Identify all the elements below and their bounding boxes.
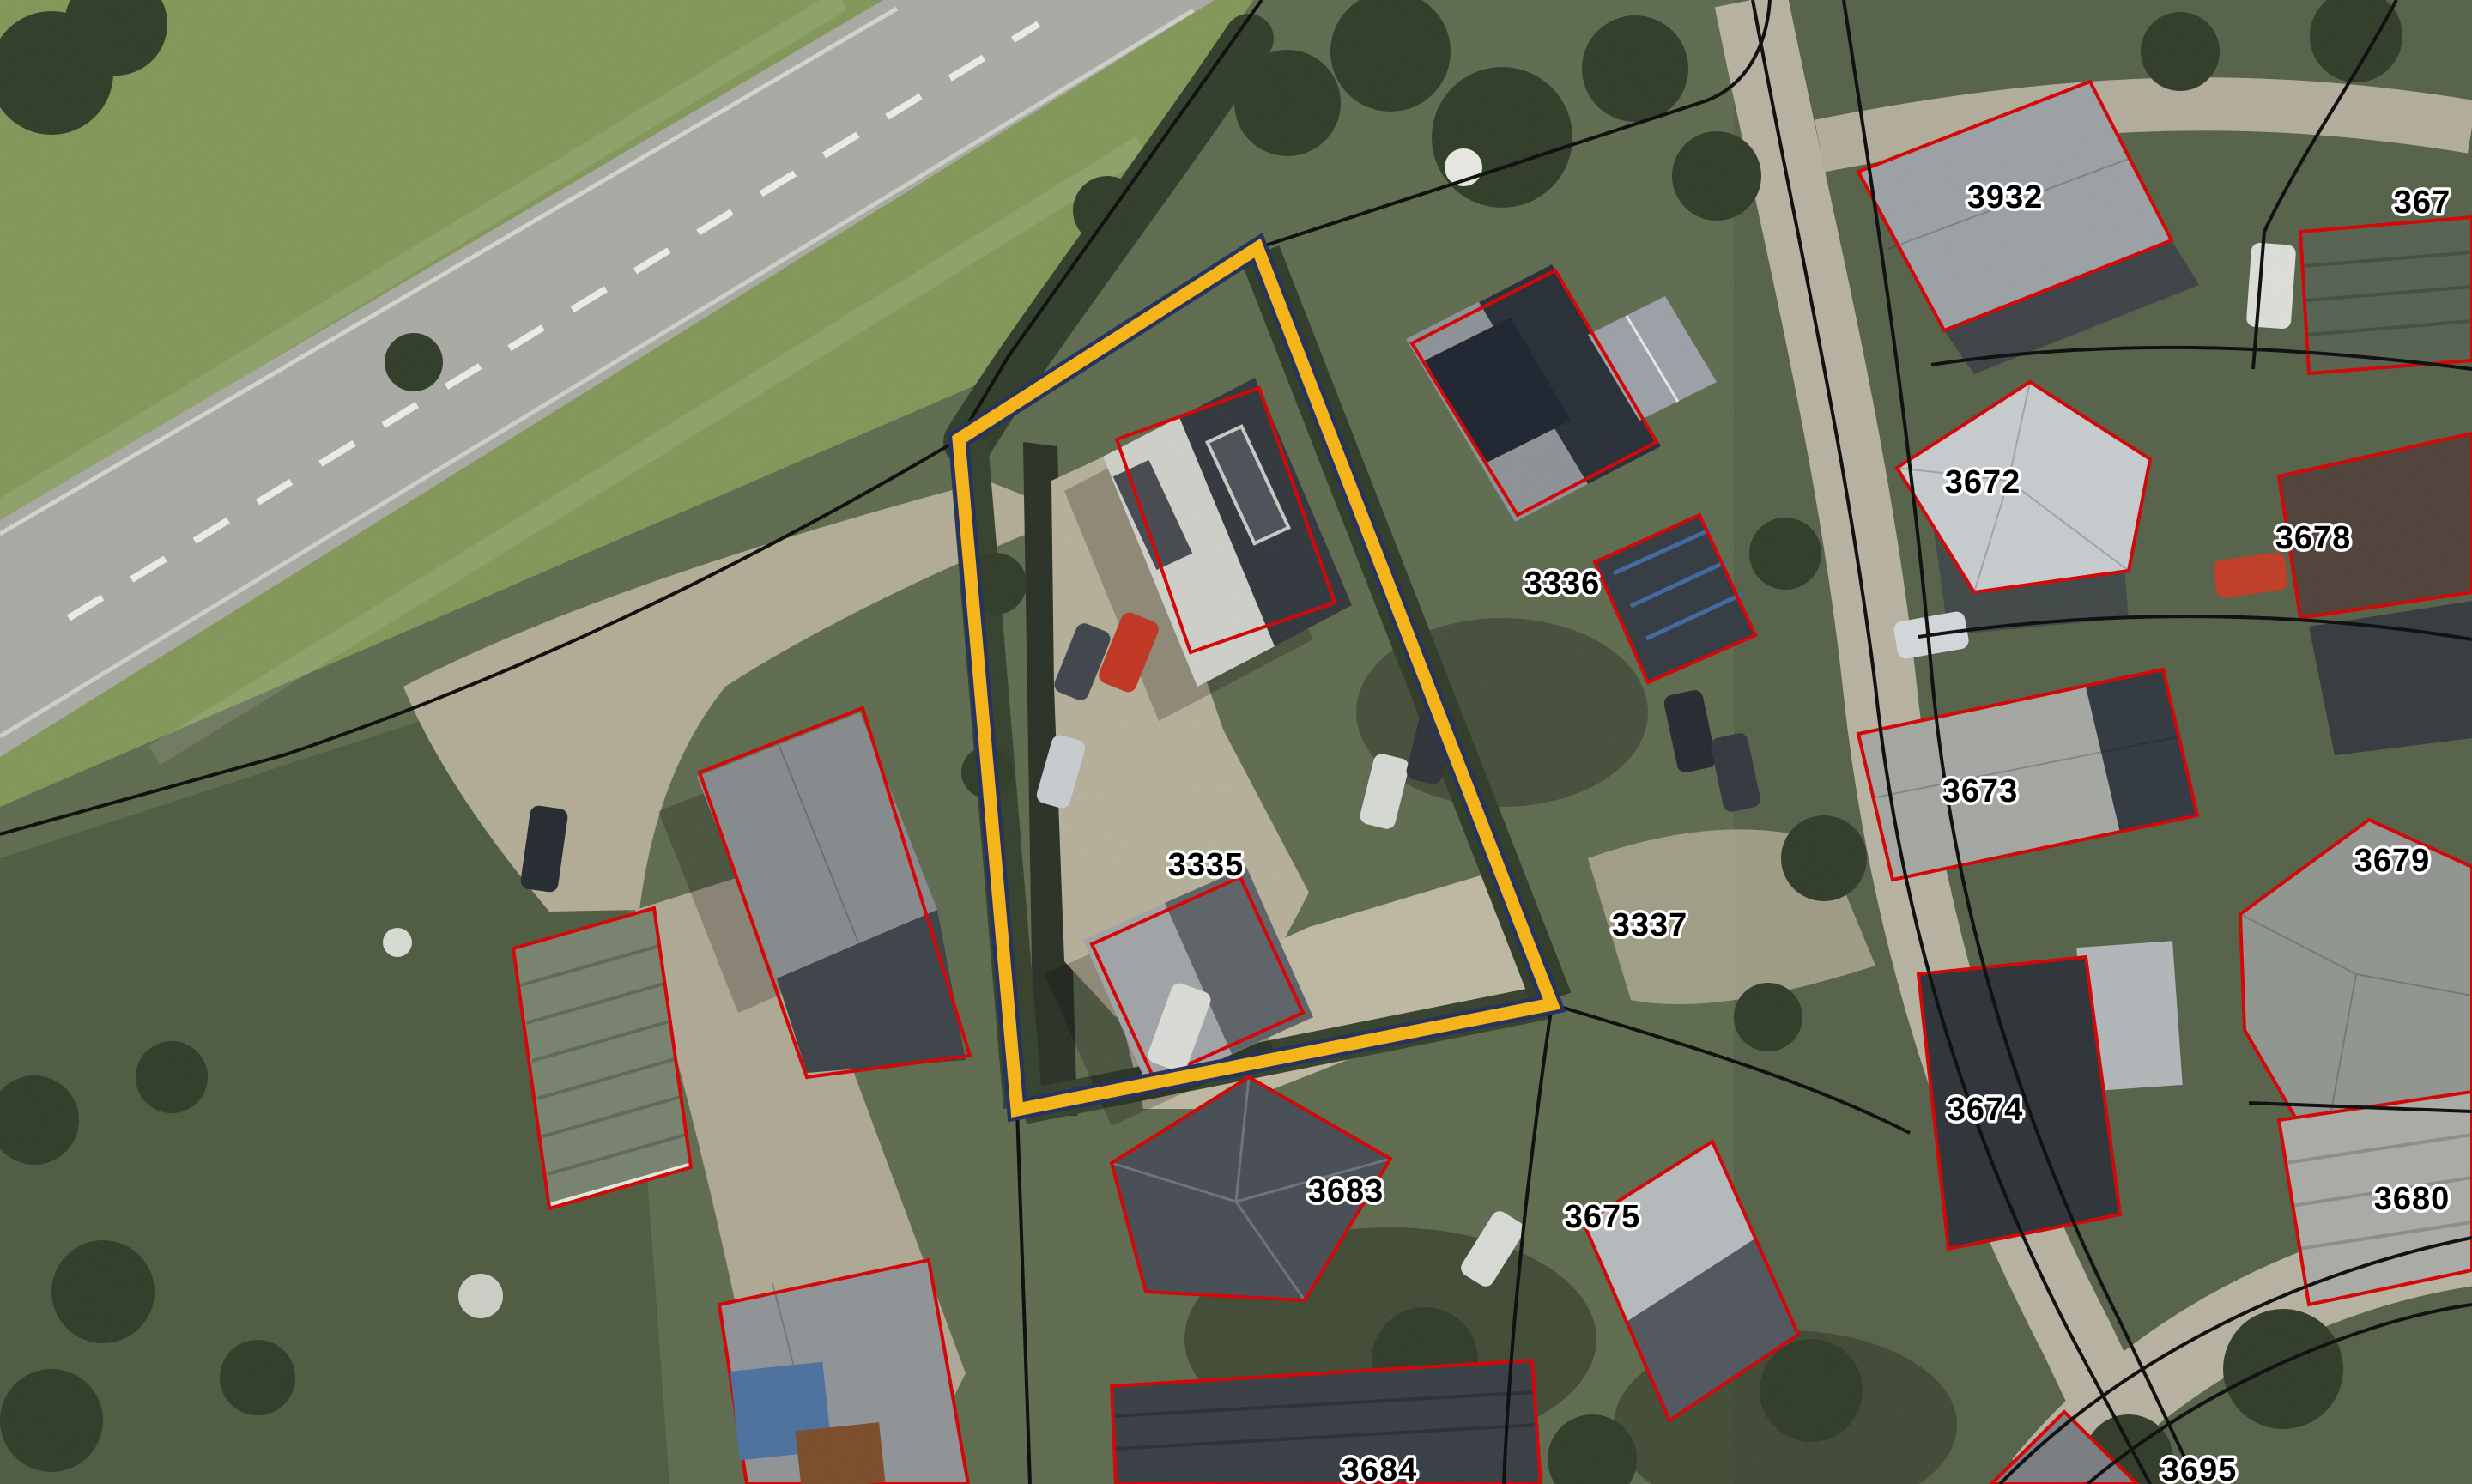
parcel-label-3674: 3674 (1948, 1092, 2024, 1128)
parcel-label-3684: 3684 (1342, 1452, 1418, 1484)
parcel-label-3675: 3675 (1565, 1199, 1641, 1235)
parcel-label-3673: 3673 (1942, 773, 2019, 809)
aerial-map-container: 3932367367236783336367336793335333736743… (0, 0, 2472, 1484)
aerial-map[interactable]: 3932367367236783336367336793335333736743… (0, 0, 2472, 1484)
photo-grain-overlay (0, 0, 2472, 1484)
parcel-label-3337: 3337 (1612, 907, 1688, 943)
parcel-label-3672: 3672 (1945, 464, 2021, 500)
parcel-label-3678: 3678 (2275, 520, 2352, 556)
parcel-label-3336: 3336 (1524, 566, 1601, 602)
parcel-label-3695: 3695 (2161, 1452, 2238, 1484)
parcel-label-3680: 3680 (2374, 1181, 2451, 1217)
parcel-label-3932: 3932 (1967, 179, 2044, 215)
parcel-label-3683: 3683 (1308, 1173, 1384, 1209)
parcel-label-367: 367 (2394, 185, 2451, 221)
parcel-label-3679: 3679 (2354, 843, 2431, 879)
parcel-label-3335: 3335 (1168, 847, 1245, 883)
